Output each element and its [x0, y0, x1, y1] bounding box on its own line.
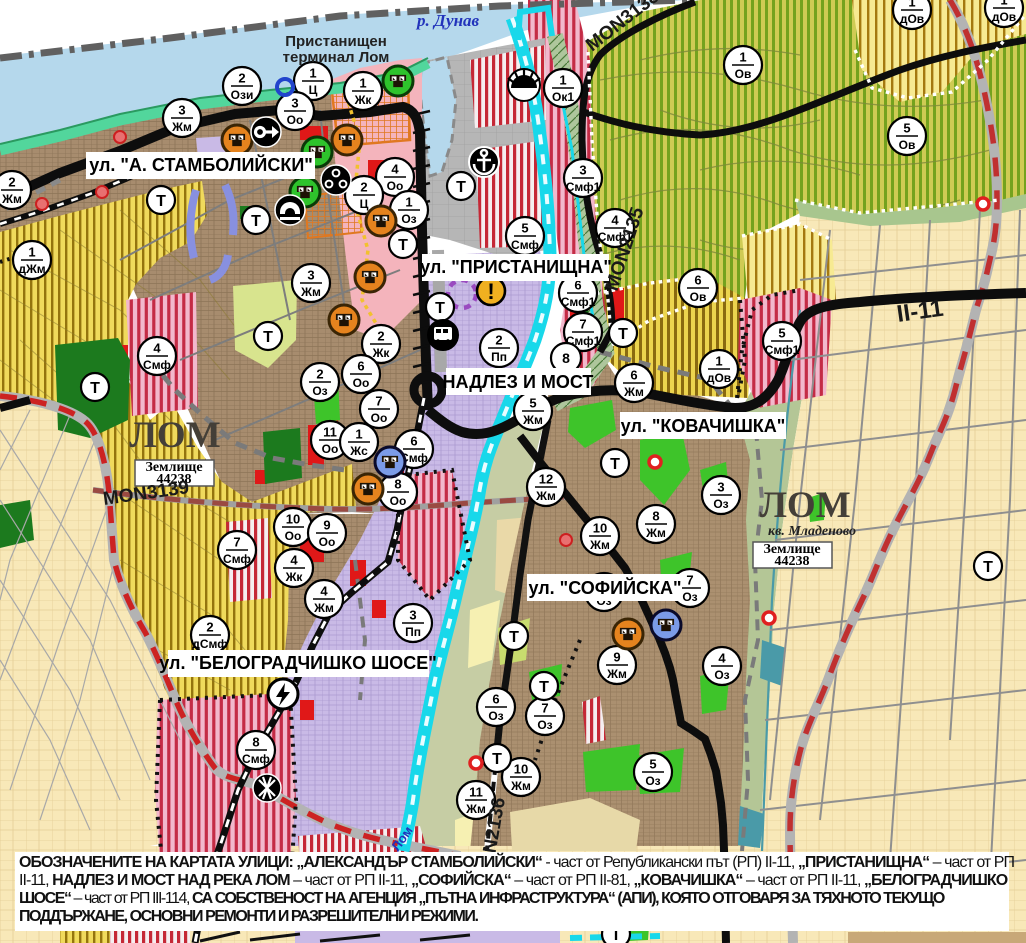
- svg-text:3: 3: [717, 480, 724, 495]
- svg-text:2: 2: [495, 333, 502, 348]
- svg-text:8: 8: [394, 477, 401, 492]
- svg-text:Т: Т: [398, 237, 408, 254]
- svg-text:Т: Т: [251, 213, 261, 230]
- svg-text:Пп: Пп: [405, 625, 421, 639]
- svg-text:Оо: Оо: [319, 535, 336, 549]
- svg-text:5: 5: [778, 326, 785, 341]
- svg-text:1: 1: [715, 354, 722, 369]
- svg-text:3: 3: [307, 268, 314, 283]
- svg-text:Жм: Жм: [171, 120, 192, 134]
- svg-text:9: 9: [613, 650, 620, 665]
- svg-text:Оз: Оз: [537, 718, 552, 732]
- svg-text:4: 4: [391, 162, 399, 177]
- svg-text:кв. Младеново: кв. Младеново: [768, 524, 856, 539]
- svg-text:ЛОМ: ЛОМ: [759, 485, 850, 526]
- svg-text:Смф: Смф: [511, 238, 539, 252]
- svg-text:Жк: Жк: [354, 93, 373, 107]
- svg-text:Т: Т: [263, 329, 273, 346]
- svg-text:Жк: Жк: [285, 570, 304, 584]
- svg-text:Смф1: Смф1: [765, 343, 800, 357]
- svg-text:Жм: Жм: [589, 538, 610, 552]
- svg-text:7: 7: [579, 317, 586, 332]
- svg-text:6: 6: [410, 434, 417, 449]
- svg-text:7: 7: [541, 701, 548, 716]
- svg-text:Оз: Оз: [714, 668, 729, 682]
- svg-text:5: 5: [529, 396, 536, 411]
- svg-text:Смф: Смф: [242, 752, 270, 766]
- svg-text:ул. "А. СТАМБОЛИЙСКИ": ул. "А. СТАМБОЛИЙСКИ": [89, 154, 313, 175]
- svg-text:1: 1: [28, 245, 35, 260]
- svg-text:Жм: Жм: [623, 385, 644, 399]
- svg-text:Т: Т: [156, 193, 166, 210]
- svg-text:р. Дунав: р. Дунав: [415, 11, 480, 30]
- svg-text:Т: Т: [618, 326, 628, 343]
- svg-text:!: !: [487, 279, 494, 304]
- svg-text:11: 11: [323, 425, 337, 440]
- svg-text:Смф1: Смф1: [561, 295, 596, 309]
- svg-text:Т: Т: [983, 559, 993, 576]
- svg-text:4: 4: [320, 584, 328, 599]
- svg-text:Смф: Смф: [143, 358, 171, 372]
- svg-text:2: 2: [377, 329, 384, 344]
- svg-text:Жм: Жм: [510, 779, 531, 793]
- svg-text:Жм: Жм: [313, 601, 334, 615]
- svg-text:Оз: Оз: [682, 590, 697, 604]
- svg-text:Жм: Жм: [1, 192, 22, 206]
- svg-text:12: 12: [539, 472, 553, 487]
- svg-text:6: 6: [630, 368, 637, 383]
- svg-text:Т: Т: [539, 679, 549, 696]
- svg-text:Оз: Оз: [488, 709, 503, 723]
- svg-text:7: 7: [686, 573, 693, 588]
- svg-text:Т: Т: [435, 300, 445, 317]
- svg-text:1: 1: [1000, 0, 1007, 8]
- svg-text:3: 3: [178, 103, 185, 118]
- svg-text:Оз: Оз: [713, 497, 728, 511]
- svg-text:Жм: Жм: [535, 489, 556, 503]
- svg-text:Жм: Жм: [606, 667, 627, 681]
- svg-text:Пп: Пп: [491, 350, 507, 364]
- svg-text:ул. "СОФИЙСКА": ул. "СОФИЙСКА": [528, 577, 681, 598]
- svg-text:Т: Т: [90, 380, 100, 397]
- svg-text:Смф1: Смф1: [566, 180, 601, 194]
- svg-text:4: 4: [611, 213, 619, 228]
- svg-text:дЖм: дЖм: [18, 262, 45, 276]
- svg-text:8: 8: [652, 509, 659, 524]
- svg-text:9: 9: [323, 518, 330, 533]
- svg-text:Пристанищен: Пристанищен: [285, 33, 387, 50]
- svg-text:Оо: Оо: [322, 442, 339, 456]
- svg-text:1: 1: [359, 76, 366, 91]
- svg-text:1: 1: [405, 195, 412, 210]
- svg-text:11: 11: [469, 785, 483, 800]
- svg-text:дОв: дОв: [707, 371, 731, 385]
- svg-text:7: 7: [233, 535, 240, 550]
- svg-text:3: 3: [579, 163, 586, 178]
- svg-text:1: 1: [908, 0, 915, 10]
- svg-text:6: 6: [492, 692, 499, 707]
- svg-text:дОв: дОв: [992, 10, 1016, 24]
- svg-text:Ц: Ц: [360, 197, 369, 211]
- svg-text:терминал Лом: терминал Лом: [283, 49, 390, 66]
- svg-text:5: 5: [521, 221, 528, 236]
- svg-text:2: 2: [316, 367, 323, 382]
- svg-text:Жм: Жм: [645, 526, 666, 540]
- svg-text:2: 2: [360, 180, 367, 195]
- svg-text:10: 10: [286, 512, 300, 527]
- svg-text:Т: Т: [492, 751, 502, 768]
- svg-text:дСмф: дСмф: [192, 637, 228, 651]
- svg-text:5: 5: [649, 757, 656, 772]
- svg-text:5: 5: [903, 121, 910, 136]
- svg-text:ул. "БЕЛОГРАДЧИШКО ШОСЕ": ул. "БЕЛОГРАДЧИШКО ШОСЕ": [159, 653, 437, 673]
- svg-text:Оо: Оо: [353, 376, 370, 390]
- svg-text:44238: 44238: [775, 554, 810, 569]
- svg-text:6: 6: [357, 359, 364, 374]
- svg-text:Ов: Ов: [899, 138, 916, 152]
- svg-text:Оо: Оо: [387, 179, 404, 193]
- svg-text:10: 10: [514, 762, 528, 777]
- svg-text:1: 1: [355, 427, 362, 442]
- svg-text:Ози: Ози: [231, 88, 254, 102]
- svg-text:4: 4: [153, 341, 161, 356]
- svg-text:Оо: Оо: [287, 113, 304, 127]
- svg-text:8: 8: [252, 735, 259, 750]
- svg-text:Оо: Оо: [390, 494, 407, 508]
- svg-text:10: 10: [593, 521, 607, 536]
- svg-text:Оз: Оз: [312, 384, 327, 398]
- svg-text:1: 1: [739, 50, 746, 65]
- svg-text:Жм: Жм: [465, 802, 486, 816]
- svg-text:1: 1: [309, 66, 316, 81]
- svg-text:Жм: Жм: [300, 285, 321, 299]
- svg-text:Ц: Ц: [309, 83, 318, 97]
- svg-text:Т: Т: [509, 629, 519, 646]
- svg-text:3: 3: [291, 96, 298, 111]
- svg-text:Жм: Жм: [522, 413, 543, 427]
- svg-text:Оо: Оо: [371, 411, 388, 425]
- svg-text:Оз: Оз: [645, 774, 660, 788]
- svg-text:Оз: Оз: [401, 212, 416, 226]
- svg-text:4: 4: [718, 651, 726, 666]
- svg-text:8: 8: [562, 350, 570, 366]
- svg-text:Жк: Жк: [372, 346, 391, 360]
- svg-text:НАДЛЕЗ И МОСТ: НАДЛЕЗ И МОСТ: [443, 372, 594, 392]
- svg-text:6: 6: [694, 273, 701, 288]
- svg-text:2: 2: [206, 620, 213, 635]
- svg-text:Ов: Ов: [690, 290, 707, 304]
- svg-text:4: 4: [290, 553, 298, 568]
- svg-text:Т: Т: [610, 456, 620, 473]
- svg-text:Ок1: Ок1: [552, 90, 574, 104]
- svg-text:дОв: дОв: [900, 12, 924, 26]
- svg-text:Т: Т: [456, 179, 466, 196]
- svg-text:Смф: Смф: [223, 552, 251, 566]
- svg-text:1: 1: [559, 73, 566, 88]
- svg-text:Ов: Ов: [735, 67, 752, 81]
- svg-text:Жс: Жс: [349, 444, 368, 458]
- svg-text:ЛОМ: ЛОМ: [129, 415, 220, 456]
- svg-text:3: 3: [409, 608, 416, 623]
- svg-text:ул. "ПРИСТАНИЩНА": ул. "ПРИСТАНИЩНА": [420, 257, 612, 277]
- svg-text:Оо: Оо: [285, 529, 302, 543]
- svg-text:2: 2: [8, 175, 15, 190]
- svg-text:7: 7: [375, 394, 382, 409]
- svg-text:ул. "КОВАЧИШКА": ул. "КОВАЧИШКА": [621, 416, 786, 436]
- svg-text:2: 2: [238, 71, 245, 86]
